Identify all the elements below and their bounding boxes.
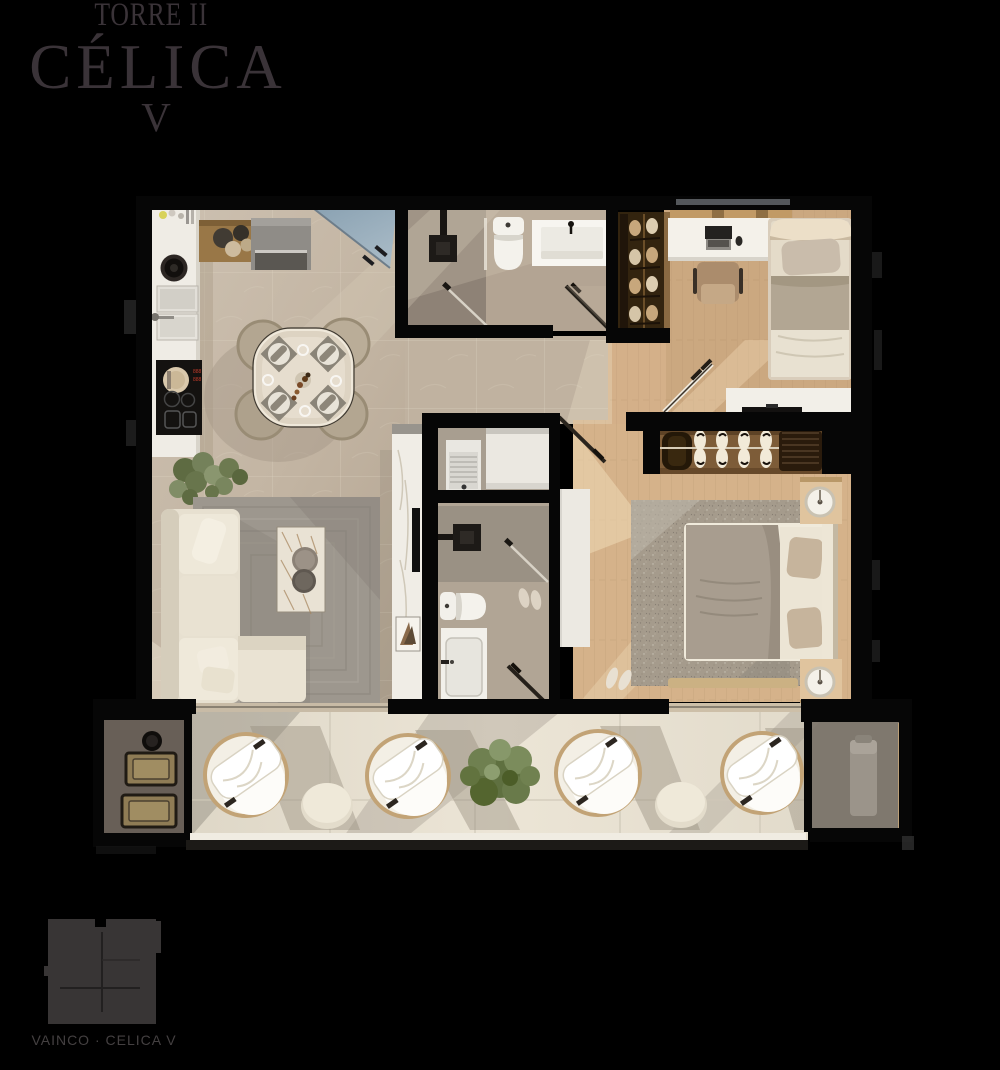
svg-text:VAINCO · CELICA V: VAINCO · CELICA V xyxy=(31,1032,176,1048)
svg-text:V: V xyxy=(141,94,171,140)
svg-text:TORRE II: TORRE II xyxy=(94,0,208,33)
svg-text:888: 888 xyxy=(193,369,202,375)
svg-text:888: 888 xyxy=(193,377,202,383)
svg-text:CÉLICA: CÉLICA xyxy=(29,32,286,102)
